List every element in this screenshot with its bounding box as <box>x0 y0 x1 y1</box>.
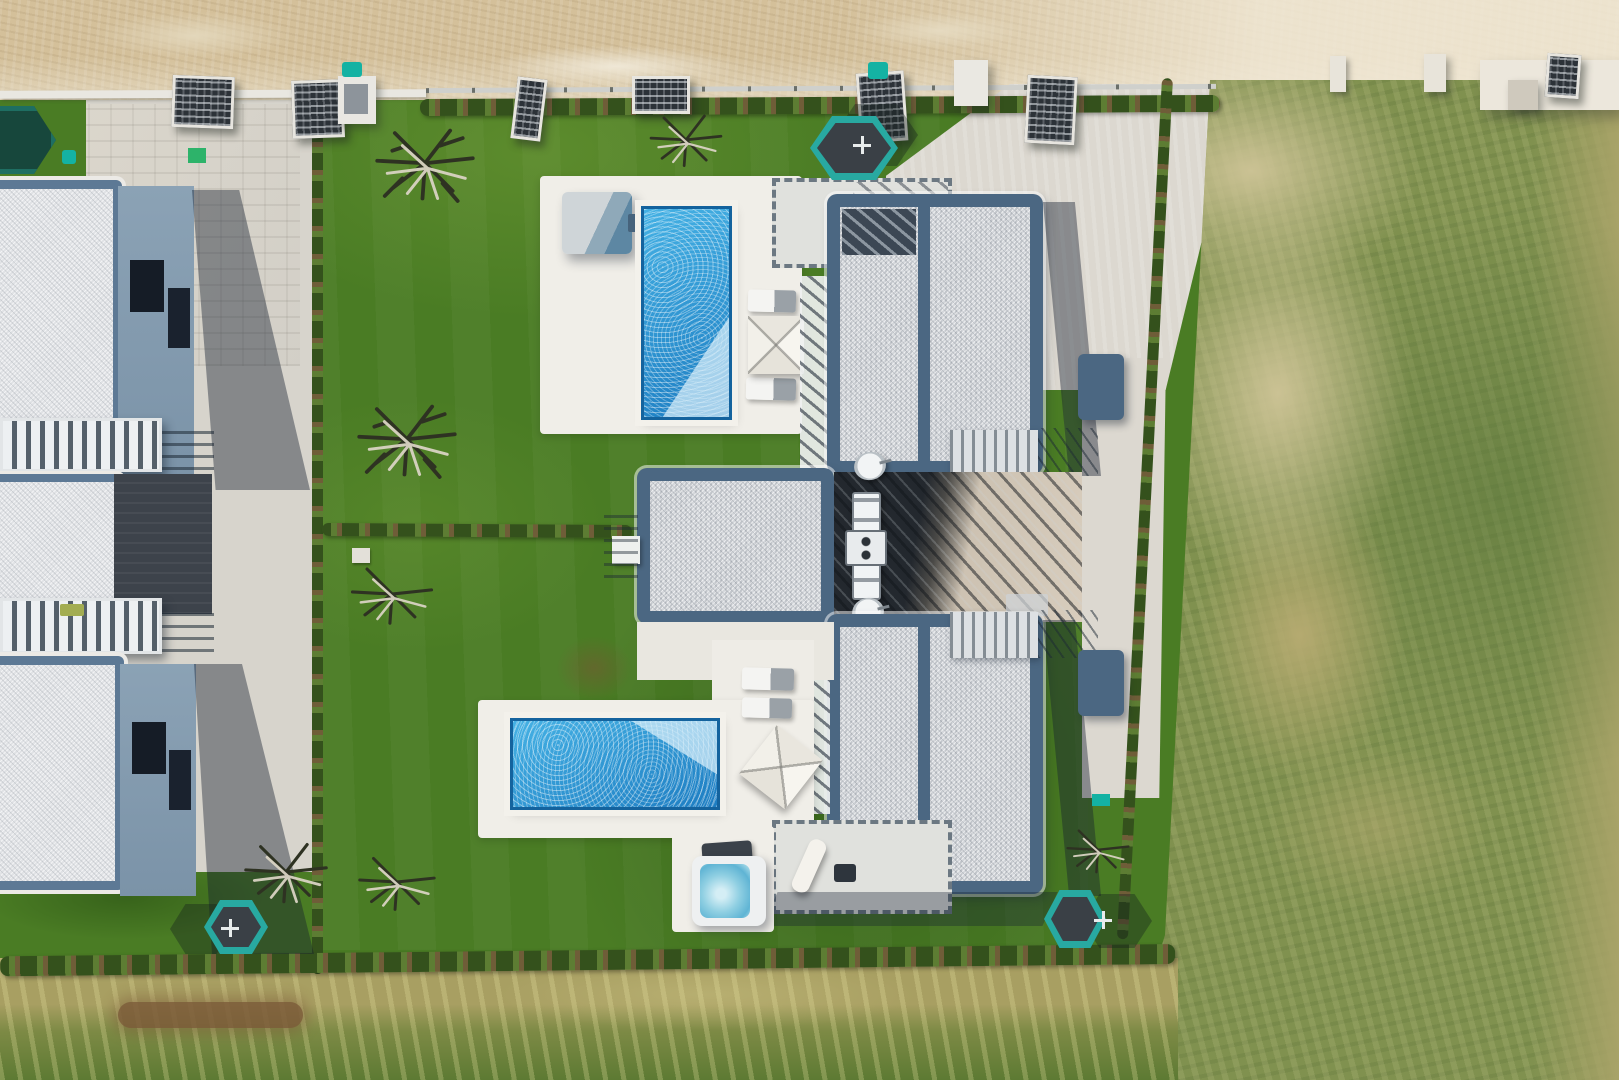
left-villa-lower-roof <box>0 656 124 890</box>
aerial-photo-scene <box>0 0 1619 1080</box>
upper-swimming-pool <box>641 206 732 420</box>
garden-railing <box>604 506 638 578</box>
trampoline <box>170 898 290 958</box>
boundary-gate-ne <box>1545 53 1582 99</box>
roof-wing-corner <box>1078 650 1124 716</box>
external-stairs <box>950 430 1038 476</box>
hot-tub-water <box>700 864 750 918</box>
fence-post <box>1330 56 1346 92</box>
roof-frame-divider <box>918 203 930 477</box>
window <box>168 288 190 348</box>
lower-swimming-pool <box>510 718 720 810</box>
balcony-railing <box>162 606 214 652</box>
trampoline-cross-mark <box>853 136 871 154</box>
sun-lounger <box>742 697 793 718</box>
building-shadow <box>762 892 1057 926</box>
garden-marker <box>188 148 206 163</box>
hot-tub <box>692 856 766 926</box>
balcony-railing <box>162 426 214 470</box>
central-wing-roof <box>637 468 834 624</box>
sun-lounger <box>60 604 84 616</box>
shaded-court <box>114 474 212 614</box>
entrance-gate <box>291 79 345 139</box>
outdoor-table <box>834 864 856 882</box>
sun-lounger <box>748 289 797 312</box>
left-villa-upper-roof <box>0 180 122 438</box>
bucket <box>62 150 76 164</box>
bare-soil-patch <box>556 636 632 700</box>
entrance-gate <box>632 76 690 114</box>
sun-lounger <box>746 377 797 400</box>
pergola-walkway <box>800 276 830 474</box>
folded-parasol <box>789 837 828 895</box>
window <box>132 722 166 774</box>
gate-pillar <box>954 60 988 106</box>
fence-post <box>1424 54 1446 92</box>
entry-courtyard <box>842 209 916 255</box>
lawn-hedge-divider <box>322 523 632 538</box>
trampoline <box>1044 884 1162 956</box>
trampoline <box>806 108 918 182</box>
dirt-track <box>118 1002 303 1028</box>
trampoline-cross-mark <box>1094 911 1112 929</box>
parasol <box>748 316 804 374</box>
roof-vent-box <box>845 530 887 566</box>
roof-wing-corner <box>1078 354 1124 420</box>
utility-pad <box>352 548 370 563</box>
window <box>130 260 164 312</box>
entrance-gate <box>1024 75 1077 146</box>
west-boundary-hedge <box>312 118 323 974</box>
stair-railing <box>1038 428 1098 476</box>
wheelie-bin <box>868 62 888 79</box>
window <box>169 750 191 810</box>
entrance-gate <box>171 75 235 129</box>
bin-enclosure <box>338 76 376 124</box>
sun-lounger <box>742 667 795 690</box>
left-villa-mid-roof <box>0 474 122 610</box>
left-villa-upper-balcony <box>0 418 162 472</box>
pool-shed <box>562 192 632 254</box>
trampoline-cross-mark <box>221 919 239 937</box>
external-stairs <box>950 612 1038 658</box>
wheelie-bin <box>342 62 362 77</box>
gate-pillar-ne <box>1508 80 1538 110</box>
garden-marker <box>1092 794 1110 806</box>
